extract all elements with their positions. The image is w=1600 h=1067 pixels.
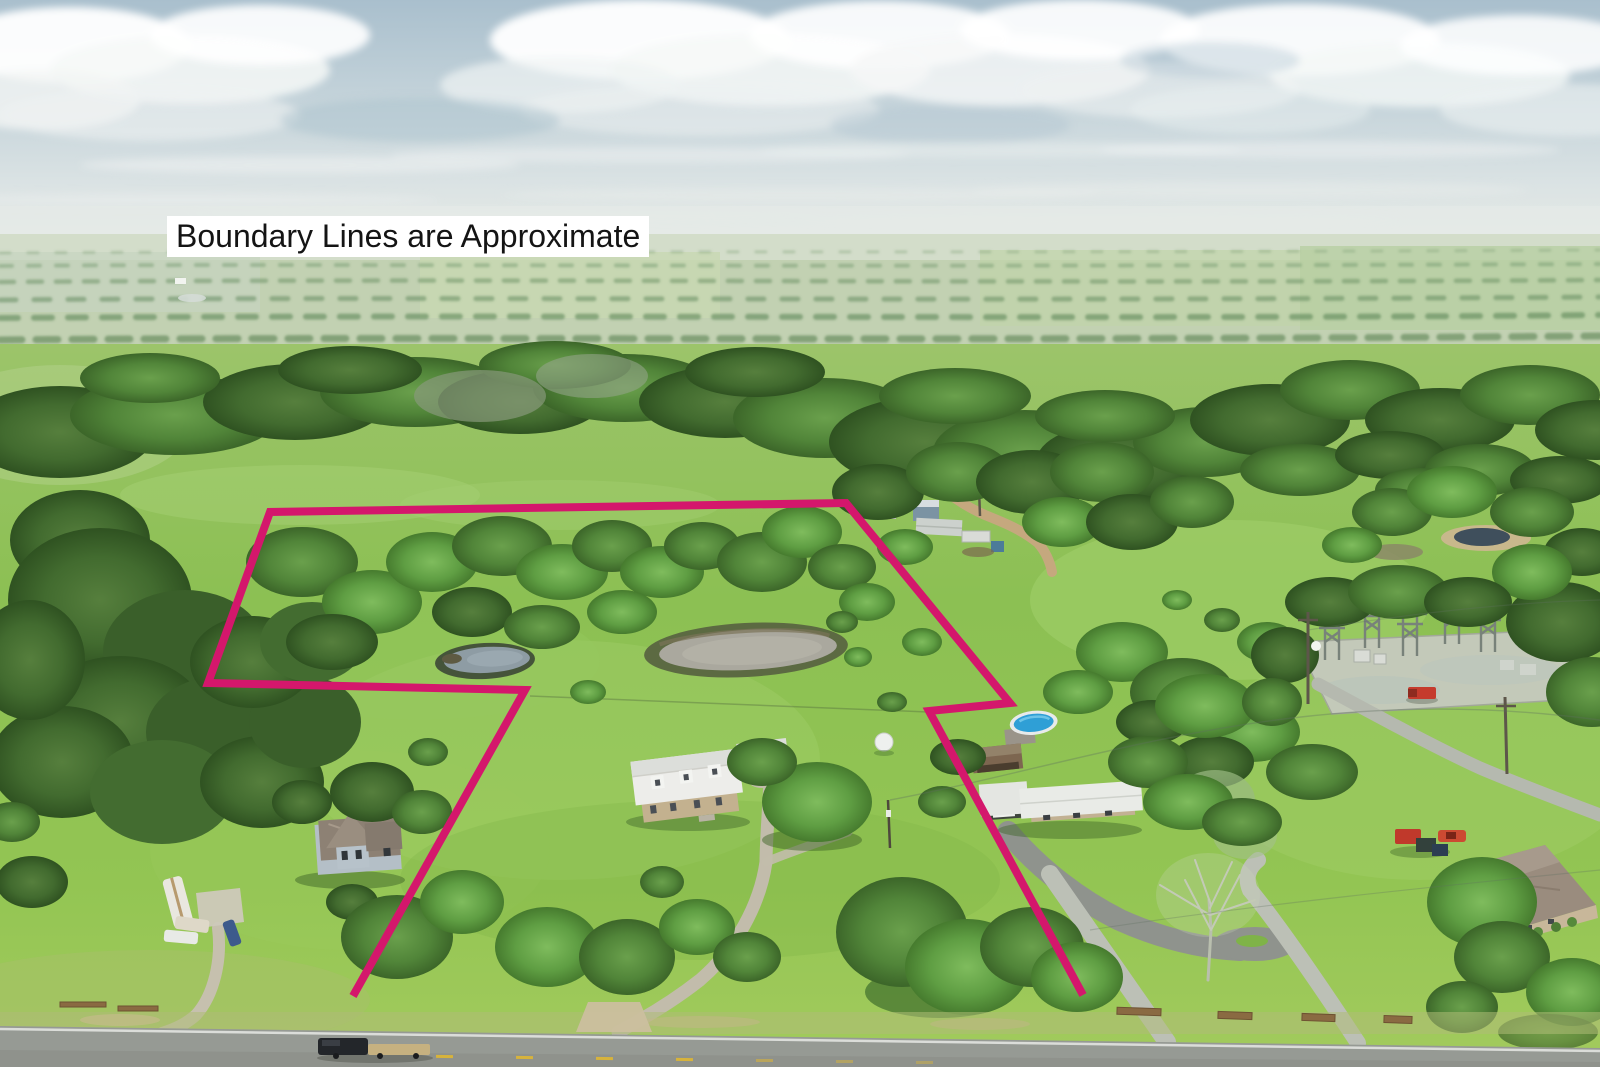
flatbed-trailer (368, 1044, 430, 1055)
shipping-container (962, 531, 990, 542)
aerial-property-photo: Boundary Lines are Approximate (0, 0, 1600, 1067)
driveway-island (1236, 935, 1268, 947)
transformer (1354, 650, 1370, 662)
dead-gray-trees (414, 370, 546, 422)
utility-pole (1505, 697, 1507, 774)
white-tank (875, 733, 893, 751)
gravel-entrance (576, 1002, 652, 1032)
brush-pile (962, 547, 994, 557)
sky (0, 0, 1600, 248)
pole-light-globe (1311, 641, 1321, 651)
distant-white-barn (175, 278, 186, 284)
distant-pond (178, 294, 206, 302)
photo-canvas (0, 0, 1600, 1067)
boundary-disclaimer-label: Boundary Lines are Approximate (167, 216, 649, 257)
